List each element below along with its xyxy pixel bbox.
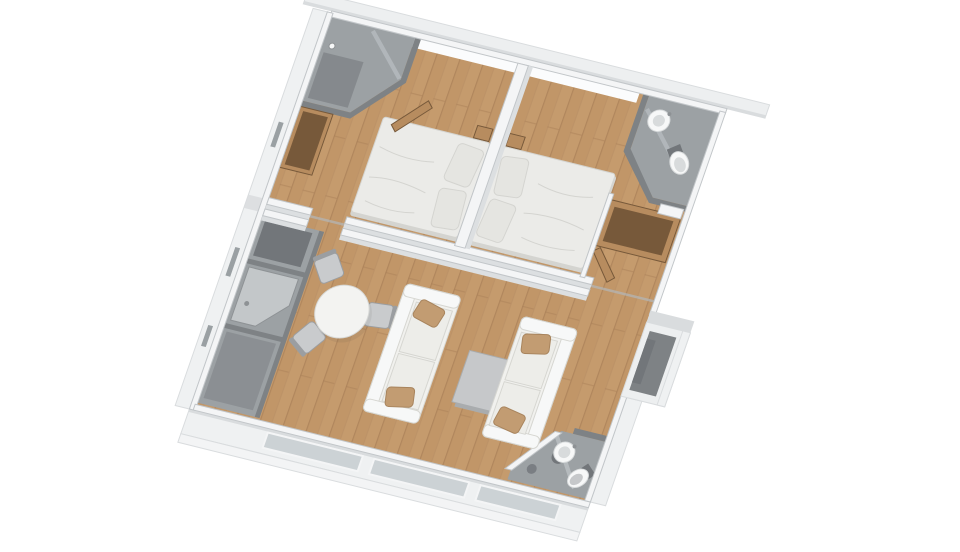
throw-pillow [385,387,415,407]
throw-pillow [521,334,551,354]
building [153,0,769,550]
screenshot-root [0,0,960,552]
floor-plan-render [0,0,960,552]
